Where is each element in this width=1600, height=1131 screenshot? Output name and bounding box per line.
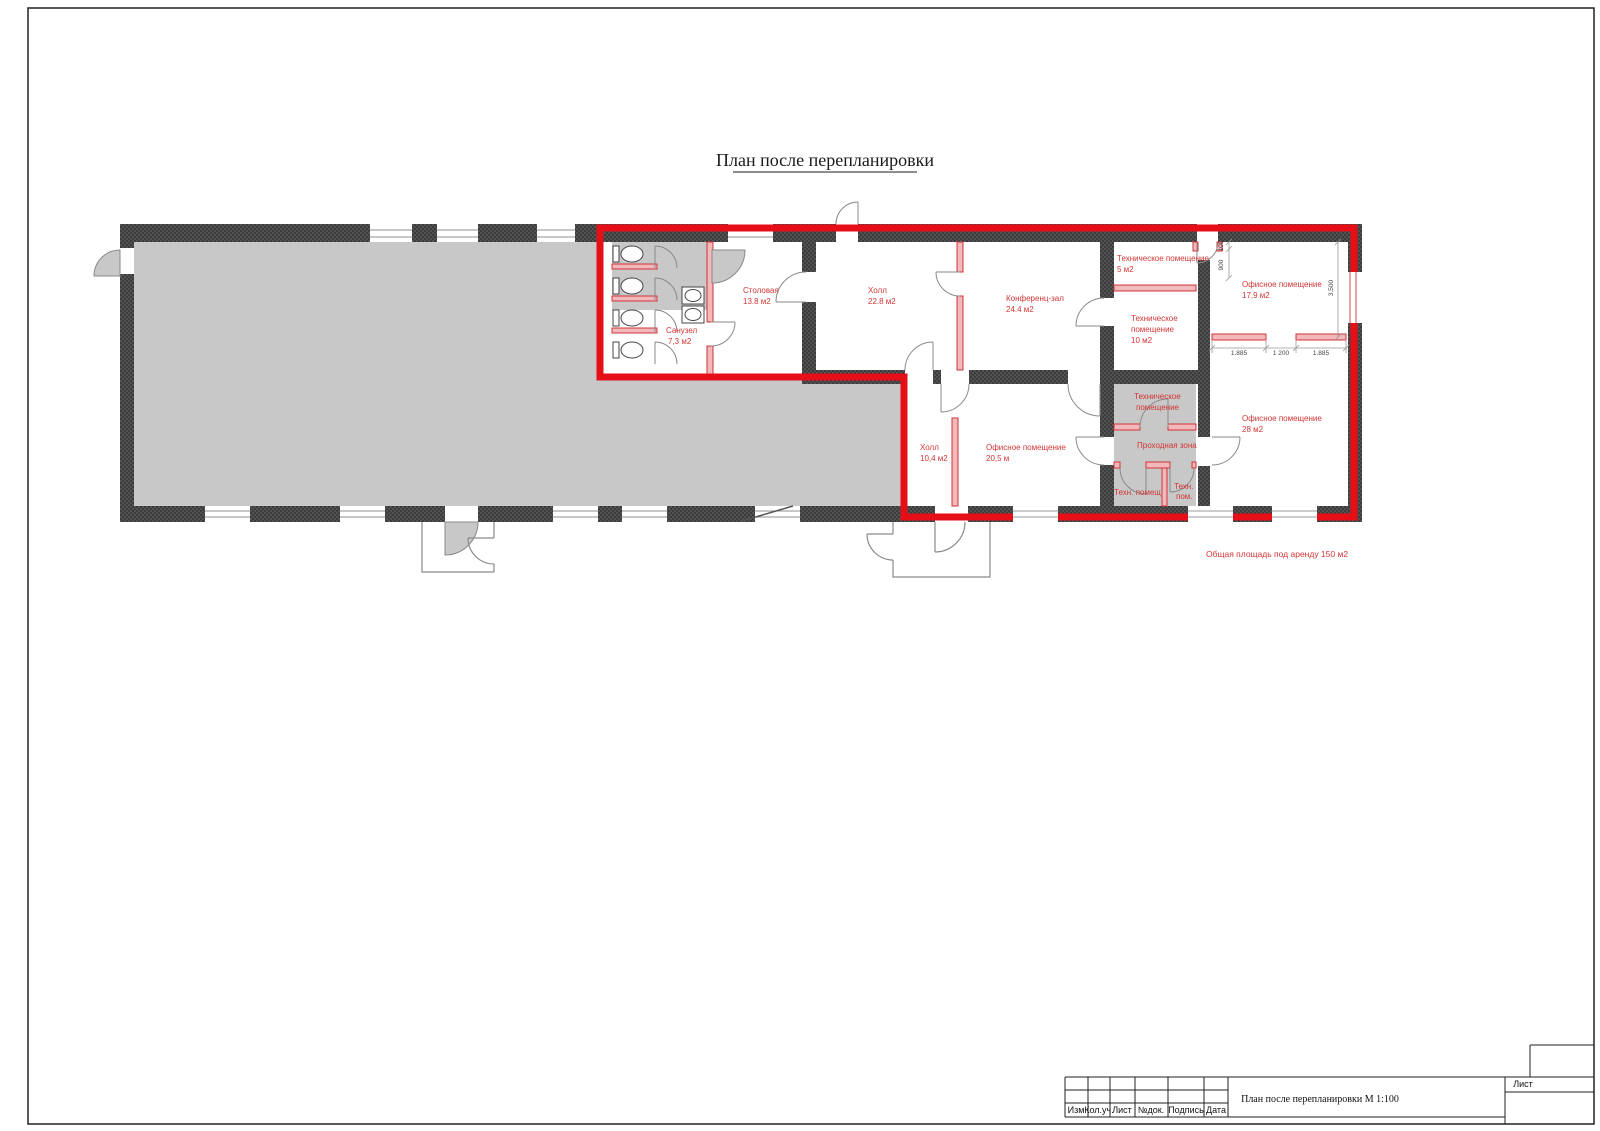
room-label-tech10: Техническое xyxy=(1131,314,1178,323)
room-area-tech10: 10 м2 xyxy=(1131,336,1153,345)
dim-door-width: 900 xyxy=(1218,259,1225,270)
room-label-tech-small-right-2: пом. xyxy=(1176,492,1193,501)
dim-door-offset: 100 xyxy=(1218,240,1225,251)
tb-col-data: Дата xyxy=(1206,1105,1226,1115)
room-label-conference: Конференц-зал xyxy=(1006,294,1064,303)
tb-col-list: Лист xyxy=(1112,1105,1132,1115)
room-label-tech-small-right: Техн. xyxy=(1174,482,1193,491)
room-label-tech10-2: помещение xyxy=(1131,325,1175,334)
toilet-icon xyxy=(613,310,643,326)
room-label-office205: Офисное помещение xyxy=(986,443,1066,452)
room-label-tech-small-left: Техн. помещ xyxy=(1114,488,1161,497)
toilet-icon xyxy=(613,278,643,294)
room-label-hall-bottom: Холл xyxy=(920,443,939,452)
porch-right xyxy=(867,522,990,577)
room-area-tech5: 5 м2 xyxy=(1117,265,1134,274)
total-area-note: Общая площадь под аренду 150 м2 xyxy=(1206,549,1348,559)
sink-icon xyxy=(682,287,704,304)
room-label-hall-top: Холл xyxy=(868,286,887,295)
tb-sheet-label: Лист xyxy=(1513,1079,1533,1089)
wc-entry-door-swing xyxy=(712,250,745,283)
tb-col-koluch: Кол.уч. xyxy=(1084,1105,1114,1115)
tb-doc-title: План после перепланировки М 1:100 xyxy=(1241,1094,1399,1105)
room-label-sanuzel: Санузел xyxy=(666,326,697,335)
dim-opening: 1 200 xyxy=(1273,350,1290,357)
room-label-office28: Офисное помещение xyxy=(1242,414,1322,423)
room-area-hall-top: 22.8 м2 xyxy=(868,297,896,306)
tb-col-izm: Изм xyxy=(1068,1105,1085,1115)
page-frame xyxy=(28,8,1594,1124)
entry-door-swing xyxy=(94,250,120,276)
room-area-sanuzel: 7,3 м2 xyxy=(668,337,692,346)
room-label-passage: Проходная зона xyxy=(1137,441,1197,450)
tb-col-ndok: №док. xyxy=(1138,1105,1164,1115)
title-block: Изм Кол.уч. Лист №док. Подпись Дата План… xyxy=(1065,1045,1594,1124)
room-label-stolovaya: Столовая xyxy=(743,286,779,295)
room-label-tech-center: Техническое xyxy=(1134,392,1181,401)
drawing-title: План после перепланировки xyxy=(716,150,934,172)
tb-col-podpis: Подпись xyxy=(1168,1105,1204,1115)
room-label-tech-center-2: помещение xyxy=(1136,403,1180,412)
room-label-tech5: Техническое помещение xyxy=(1117,254,1209,263)
room-label-office179: Офисное помещение xyxy=(1242,280,1322,289)
drawing-title-text: План после перепланировки xyxy=(716,150,934,170)
room-area-conference: 24.4 м2 xyxy=(1006,305,1034,314)
floor-plan-sheet: План после перепланировки xyxy=(0,0,1600,1131)
dim-right-width: 1.885 xyxy=(1313,350,1330,357)
porches xyxy=(422,522,990,577)
room-area-office28: 28 м2 xyxy=(1242,425,1264,434)
room-area-hall-bottom: 10,4 м2 xyxy=(920,454,948,463)
toilet-icon xyxy=(613,246,643,262)
toilet-icon xyxy=(613,342,643,358)
dim-left-width: 1.885 xyxy=(1231,350,1248,357)
room-area-office205: 20,5 м xyxy=(986,454,1009,463)
room-area-office179: 17,9 м2 xyxy=(1242,291,1270,300)
room-area-stolovaya: 13.8 м2 xyxy=(743,297,771,306)
sink-icon xyxy=(682,306,704,323)
dim-room-depth: 3.500 xyxy=(1328,279,1335,296)
